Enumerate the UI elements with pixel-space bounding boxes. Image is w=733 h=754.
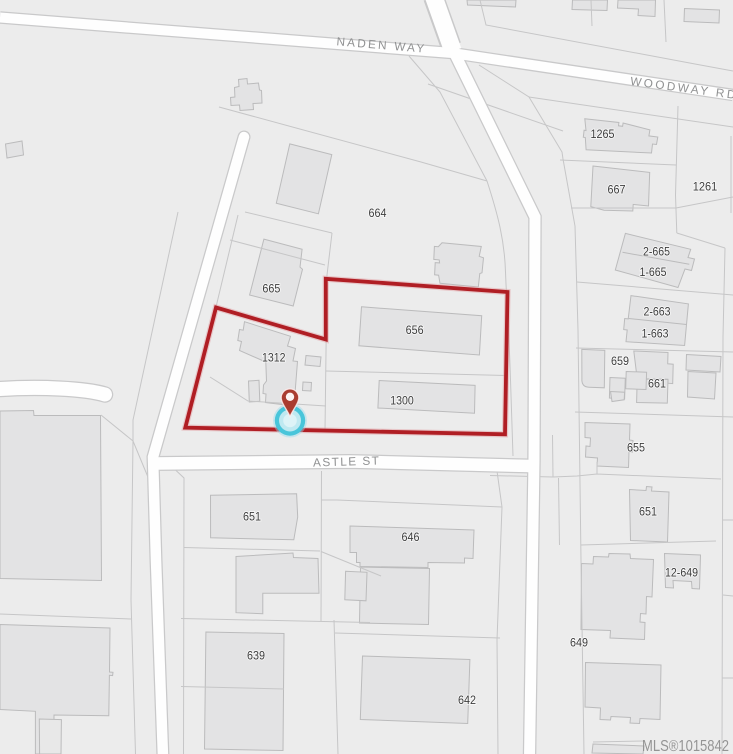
svg-text:656: 656	[406, 323, 424, 337]
svg-text:661: 661	[648, 377, 666, 391]
svg-text:651: 651	[639, 505, 657, 519]
svg-text:2-665: 2-665	[643, 245, 670, 259]
svg-text:651: 651	[243, 510, 261, 524]
svg-text:1265: 1265	[591, 127, 615, 141]
svg-text:ASTLE ST: ASTLE ST	[313, 453, 381, 469]
svg-text:642: 642	[458, 693, 476, 707]
svg-text:2-663: 2-663	[644, 305, 671, 319]
svg-text:12-649: 12-649	[665, 566, 698, 580]
svg-text:1312: 1312	[262, 351, 286, 365]
svg-text:1300: 1300	[390, 394, 414, 408]
svg-text:1-663: 1-663	[642, 327, 669, 341]
svg-text:664: 664	[369, 206, 387, 220]
svg-text:667: 667	[608, 183, 626, 197]
svg-text:655: 655	[627, 441, 645, 455]
svg-text:1-665: 1-665	[640, 265, 667, 279]
svg-text:639: 639	[247, 649, 265, 663]
svg-text:646: 646	[402, 530, 420, 544]
svg-text:665: 665	[262, 282, 280, 296]
svg-text:1261: 1261	[693, 180, 718, 194]
svg-text:649: 649	[570, 636, 588, 650]
svg-text:MLS®1015842: MLS®1015842	[642, 738, 729, 754]
svg-text:659: 659	[611, 354, 629, 368]
